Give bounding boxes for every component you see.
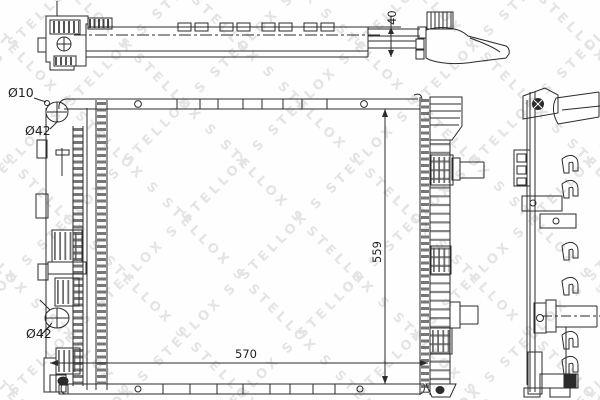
front-view [34, 94, 484, 397]
right-tank [426, 97, 484, 397]
drain-plug-side [564, 375, 576, 387]
dim-label-40: 40 [385, 10, 399, 25]
port-label-d10: Ø10 [8, 85, 34, 100]
radiator-views-svg: 40 559 570 Ø10 Ø42 Ø42 [0, 0, 600, 400]
port-label-d42-top: Ø42 [25, 123, 51, 138]
top-pipe [553, 92, 600, 124]
side-outlet-pipe [534, 300, 600, 333]
dim-label-570: 570 [235, 347, 257, 361]
side-bracket [514, 150, 530, 186]
core-right-serration [420, 97, 430, 395]
clip-hooks [562, 155, 578, 374]
top-view [38, 1, 509, 70]
radiator-technical-drawing: S STELLOX S STELLOX S STELLOX S STELLOX … [0, 0, 600, 400]
drain-plug-right [436, 387, 444, 394]
side-drain-assembly [524, 352, 578, 397]
side-view [514, 88, 600, 397]
dim-label-559: 559 [370, 241, 384, 263]
top-header-band [59, 94, 422, 109]
port-label-d42-bottom: Ø42 [26, 326, 52, 341]
bottom-footer-band [61, 384, 424, 394]
left-tank [36, 101, 87, 395]
core-left-serration [96, 100, 107, 390]
